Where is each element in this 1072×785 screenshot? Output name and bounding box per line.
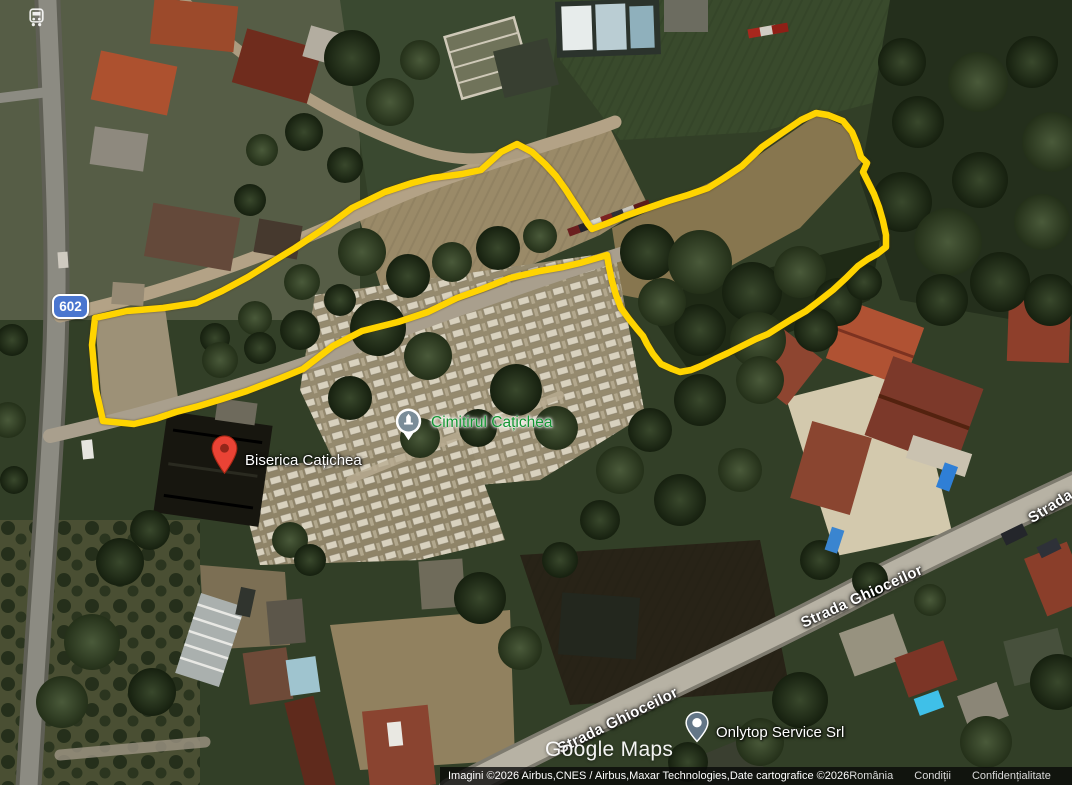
imagery-credit: Imagini ©2026 Airbus,CNES / Airbus,Maxar…	[448, 770, 849, 782]
church-marker[interactable]	[211, 435, 238, 475]
route-shield-602: 602	[52, 294, 89, 319]
business-marker[interactable]	[684, 711, 710, 743]
cemetery-marker[interactable]	[394, 407, 423, 441]
cemetery-pin-icon	[394, 407, 423, 441]
satellite-imagery	[0, 0, 1072, 785]
transit-stop-marker[interactable]	[27, 7, 46, 28]
church-label[interactable]: Biserica Cațichea	[245, 452, 362, 469]
link-romania[interactable]: România	[849, 770, 893, 782]
map-viewport[interactable]: 602 Cimitirul Cațichea Biserica Cațichea…	[0, 0, 1072, 785]
business-label[interactable]: Onlytop Service Srl	[716, 724, 844, 741]
place-dot-icon	[684, 711, 710, 743]
attribution-links: România Condiții Confidențialitate Trimi…	[849, 770, 1072, 782]
red-pin-icon	[211, 435, 238, 475]
attribution-bar: Imagini ©2026 Airbus,CNES / Airbus,Maxar…	[440, 767, 1072, 785]
link-terms[interactable]: Condiții	[914, 770, 951, 782]
cemetery-label[interactable]: Cimitirul Cațichea	[431, 414, 552, 432]
google-maps-watermark: Google Maps	[545, 738, 673, 762]
link-privacy[interactable]: Confidențialitate	[972, 770, 1051, 782]
bus-icon	[27, 7, 46, 28]
